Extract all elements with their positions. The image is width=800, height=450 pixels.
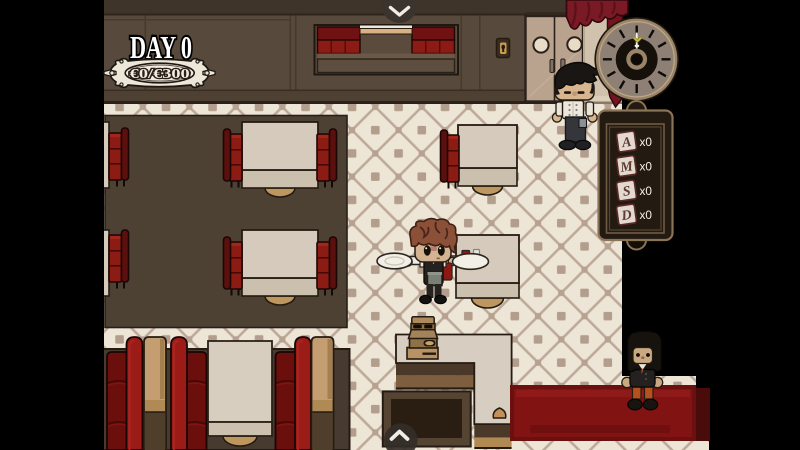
svg-text:x0: x0 <box>640 208 653 222</box>
svg-text:x0: x0 <box>640 135 653 149</box>
svg-text:x0: x0 <box>640 160 653 174</box>
svg-text:A: A <box>620 135 632 151</box>
svg-text:x0: x0 <box>640 184 653 198</box>
svg-text:M: M <box>619 159 635 176</box>
svg-text:D: D <box>620 208 633 224</box>
svg-text:€0/€300: €0/€300 <box>130 66 190 81</box>
